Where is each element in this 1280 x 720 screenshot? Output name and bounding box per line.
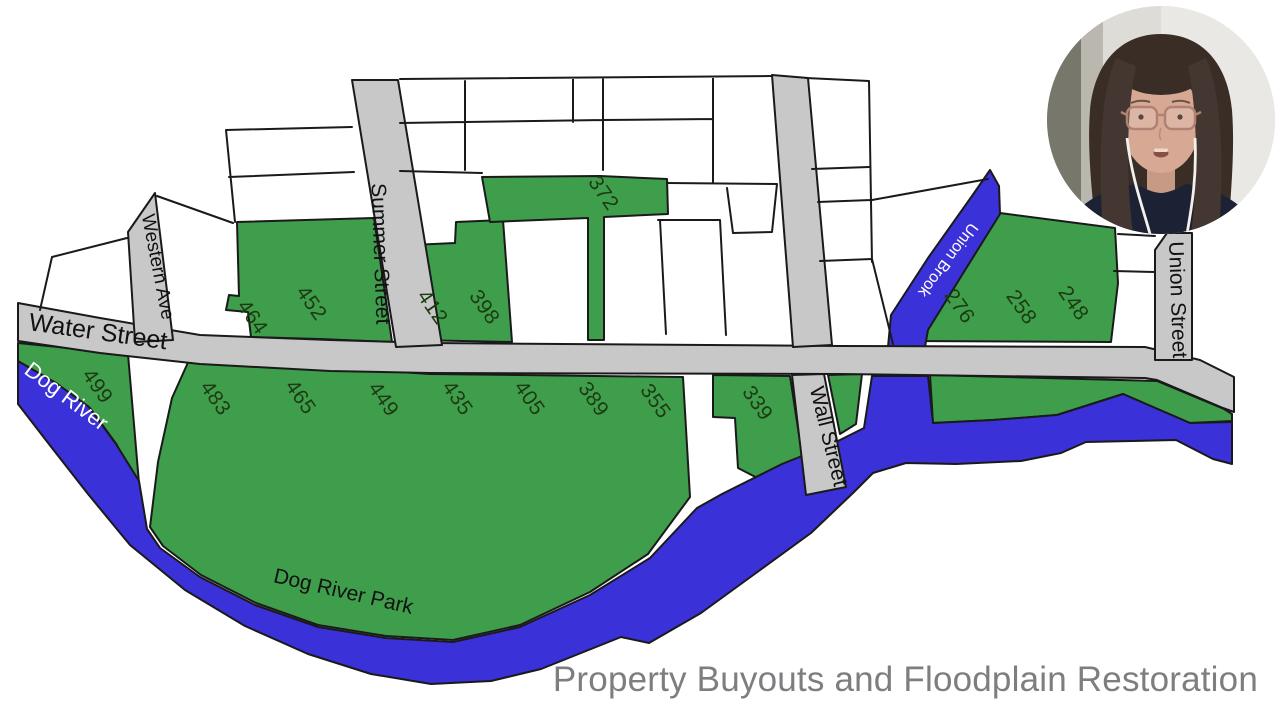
webcam-video-circle: [1047, 6, 1275, 234]
map-canvas: Water Street Western Ave Summer Street W…: [0, 0, 1280, 720]
glasses-right-lens: [1165, 107, 1195, 129]
wall-street-north-shape: [772, 75, 832, 347]
webcam-background-dark-edge: [1047, 6, 1081, 234]
slide-title: Property Buyouts and Floodplain Restorat…: [553, 660, 1258, 700]
union-street-label: Union Street: [1164, 241, 1191, 359]
presentation-slide: Water Street Western Ave Summer Street W…: [0, 0, 1280, 720]
buyout-parcels: [18, 176, 1232, 640]
teeth: [1154, 149, 1168, 153]
glasses-left-lens: [1127, 107, 1157, 129]
